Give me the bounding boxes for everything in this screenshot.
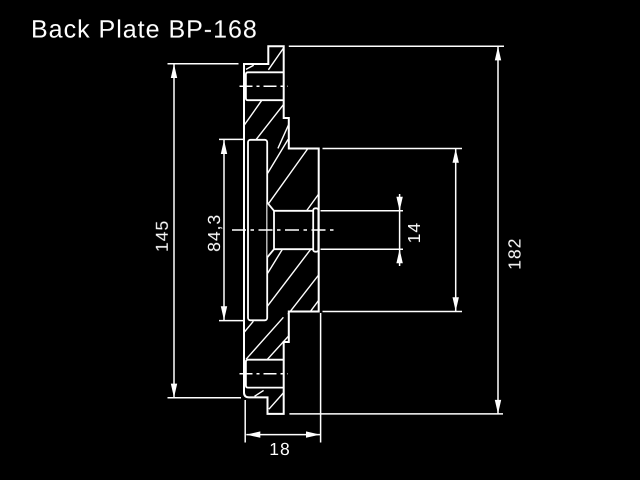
svg-text:18: 18 [269, 439, 290, 459]
svg-text:182: 182 [505, 238, 525, 270]
svg-text:Back Plate BP-168: Back Plate BP-168 [31, 16, 258, 44]
svg-text:14: 14 [404, 222, 424, 243]
svg-text:145: 145 [152, 220, 172, 252]
svg-text:84,3: 84,3 [204, 214, 224, 252]
